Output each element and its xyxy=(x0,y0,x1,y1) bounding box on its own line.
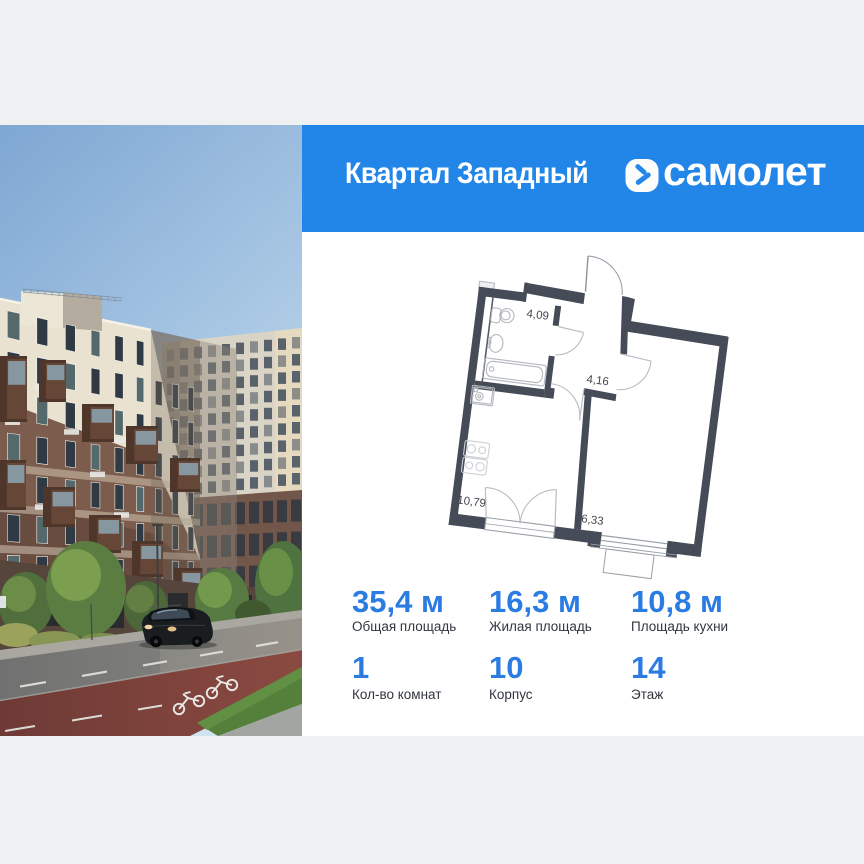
svg-text:4,16: 4,16 xyxy=(586,374,610,389)
svg-text:4,09: 4,09 xyxy=(526,308,550,323)
svg-text:10,79: 10,79 xyxy=(456,495,486,511)
